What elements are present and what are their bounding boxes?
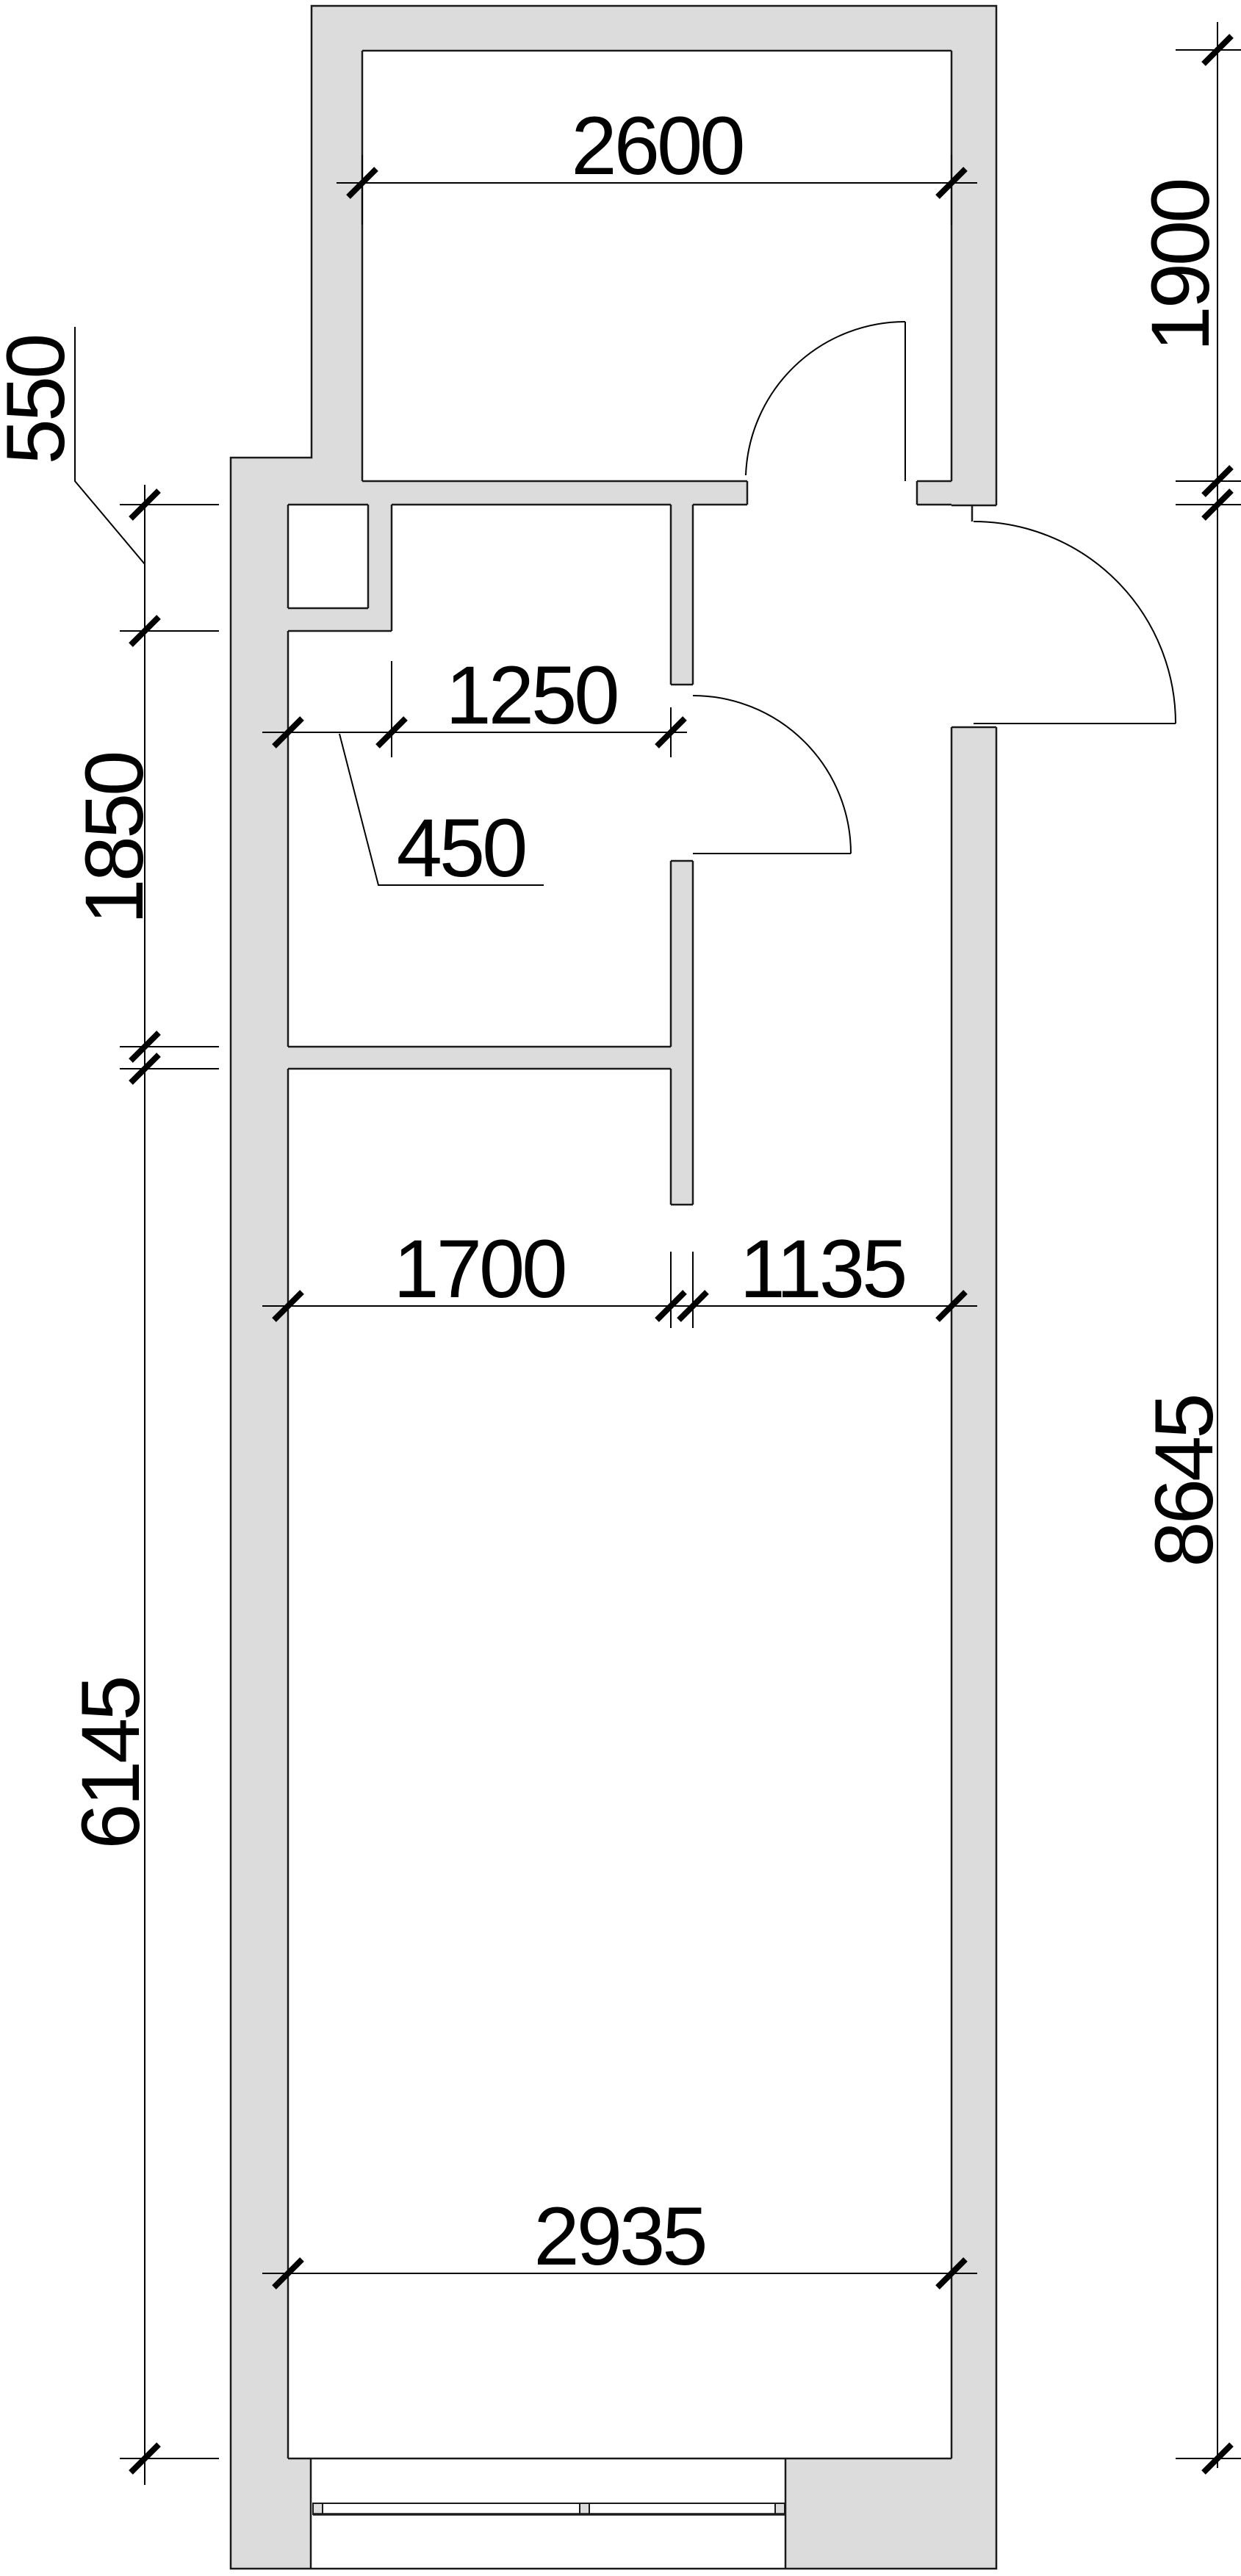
- dim-label-1900: 1900: [1134, 180, 1226, 351]
- dim-label-2600: 2600: [571, 100, 742, 192]
- wall-toproom-bottom: [231, 481, 747, 505]
- window-mullion: [580, 2503, 589, 2514]
- door-arc-hall: [693, 696, 851, 854]
- dim-label-450: 450: [397, 802, 525, 894]
- dimension-text-layer: 2600 1250 450 1700 1135 2935 550 1850 61…: [0, 100, 1230, 2282]
- window-post-left: [313, 2503, 323, 2514]
- wall-interior-upper: [671, 505, 693, 685]
- wall-right-upper: [952, 6, 996, 505]
- door-arc-entrance: [974, 522, 1176, 724]
- dim-label-1850: 1850: [68, 753, 160, 924]
- floor-plan-page: 2600 1250 450 1700 1135 2935 550 1850 61…: [0, 0, 1241, 2576]
- dim-label-6145: 6145: [65, 1678, 157, 1849]
- dim-label-2935: 2935: [533, 2190, 705, 2282]
- dim-label-550: 550: [0, 336, 82, 465]
- dim-label-1250: 1250: [445, 649, 616, 741]
- wall-door-pier: [917, 481, 952, 505]
- wall-window-pier-right: [785, 2458, 952, 2569]
- wall-interior-horizontal: [288, 1047, 671, 1069]
- window-post-right: [775, 2503, 785, 2514]
- dim-label-8645: 8645: [1138, 1396, 1230, 1567]
- wall-left: [231, 458, 288, 2569]
- doors-layer: [693, 322, 1176, 854]
- wall-right-lower: [952, 727, 996, 2569]
- wall-window-pier-left: [288, 2458, 311, 2569]
- extlines-right: [1176, 50, 1241, 2458]
- leader-550: [75, 327, 145, 564]
- wall-interior-lower: [671, 861, 693, 1205]
- door-arc-toproom: [746, 322, 905, 475]
- wall-niche-bottom: [288, 608, 392, 631]
- wall-toproom-left: [312, 6, 362, 481]
- dim-label-1135: 1135: [740, 1223, 905, 1315]
- dim-label-1700: 1700: [393, 1223, 564, 1315]
- floor-plan-canvas: 2600 1250 450 1700 1135 2935 550 1850 61…: [0, 0, 1241, 2576]
- wall-outline-entrance-opening: [952, 505, 996, 727]
- window-frame-posts-outline: [313, 2503, 785, 2514]
- wall-top: [312, 6, 996, 51]
- dimension-ticks: [131, 36, 1231, 2472]
